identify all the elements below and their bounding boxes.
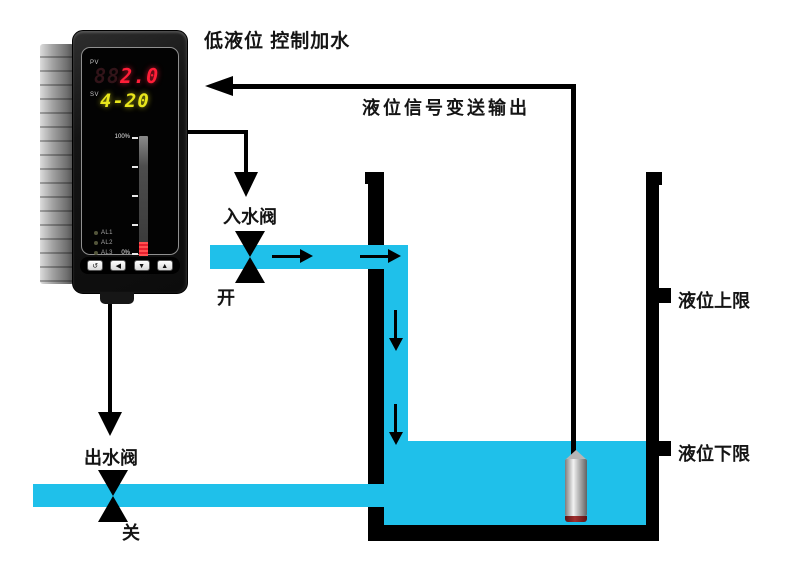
level-control-diagram: 低液位 控制加水 液位信号变送输出 入水阀 开 出水阀 关 液位上限 液位下限 …: [0, 0, 790, 566]
alarm-led-3: [94, 251, 98, 255]
flow-arrow-down-2-head: [389, 432, 403, 445]
signal-output-label: 液位信号变送输出: [362, 94, 530, 120]
inlet-control-line-vertical: [244, 130, 248, 172]
diagram-title: 低液位 控制加水: [204, 26, 350, 53]
inlet-valve-state: 开: [217, 284, 235, 310]
alarm-label-1: AL1: [101, 230, 113, 236]
bar-scale-max: 100%: [108, 134, 130, 140]
flow-arrow-down-2-shaft: [394, 404, 397, 432]
alarm-row-3: AL3: [94, 250, 113, 256]
outlet-control-line-vertical: [108, 300, 112, 412]
upper-limit-tick: [656, 288, 671, 303]
level-sensor-probe: [565, 459, 587, 516]
upper-limit-label: 液位上限: [678, 287, 750, 313]
flow-arrow-right-2-head: [388, 249, 401, 263]
alarm-label-3: AL3: [101, 250, 113, 256]
lower-limit-label: 液位下限: [678, 440, 750, 466]
inlet-valve-symbol-lower: [235, 257, 265, 283]
inlet-control-line-horizontal: [186, 130, 248, 134]
flow-arrow-right-1-shaft: [272, 255, 300, 258]
outlet-pipe-water: [33, 484, 384, 507]
flow-arrow-down-1-shaft: [394, 310, 397, 338]
alarm-led-2: [94, 241, 98, 245]
bar-tick-50: [132, 195, 138, 197]
inlet-control-arrow-head: [234, 172, 258, 197]
tank-left-wall-cap: [365, 172, 384, 184]
pv-readout: 88 2.0: [94, 64, 159, 88]
bar-fill: [139, 242, 148, 256]
alarm-row-2: AL2: [94, 240, 113, 246]
inlet-valve-label: 入水阀: [223, 203, 277, 229]
lower-limit-tick: [656, 441, 671, 456]
flow-arrow-right-1-head: [300, 249, 313, 263]
meter-front-panel: PV 88 2.0 SV 4-20 100% 0% AL1: [72, 30, 188, 294]
alarm-row-1: AL1: [94, 230, 113, 236]
tank-left-wall-middle: [368, 269, 384, 484]
meter-side-panel: [40, 44, 74, 284]
sensor-cable: [571, 84, 576, 456]
meter-keypad: ↺ ◀ ▼ ▲: [80, 257, 180, 274]
bar-tick-0: [132, 253, 138, 255]
tank-right-wall: [646, 172, 659, 527]
sv-label: SV: [90, 92, 99, 98]
flow-arrow-right-2-shaft: [360, 255, 388, 258]
tank-left-wall-lower: [368, 507, 384, 527]
bar-tick-75: [132, 166, 138, 168]
inlet-valve-symbol: [235, 231, 265, 257]
bargraph-track: [139, 136, 148, 256]
outlet-control-arrow-head: [98, 412, 122, 436]
sv-value: 4-20: [100, 90, 150, 112]
bar-tick-25: [132, 224, 138, 226]
tank-right-wall-cap: [646, 172, 662, 185]
up-key-button: ▲: [157, 260, 173, 271]
down-key-button: ▼: [134, 260, 150, 271]
flow-arrow-down-1-head: [389, 338, 403, 351]
bar-tick-100: [132, 137, 138, 139]
set-key-button: ↺: [87, 260, 103, 271]
signal-arrow-head: [205, 76, 233, 96]
sv-readout: 4-20: [100, 90, 150, 112]
alarm-led-1: [94, 231, 98, 235]
meter-display: PV 88 2.0 SV 4-20 100% 0% AL1: [81, 47, 179, 255]
pv-ghost-digits: 88: [94, 64, 120, 88]
meter-mount-tab: [100, 292, 134, 304]
level-sensor-tip: [565, 516, 587, 522]
outlet-valve-label: 出水阀: [84, 444, 138, 470]
alarm-label-2: AL2: [101, 240, 113, 246]
shift-key-button: ◀: [110, 260, 126, 271]
outlet-valve-symbol: [98, 470, 128, 496]
outlet-valve-state: 关: [122, 519, 140, 545]
signal-line-horizontal: [231, 84, 575, 89]
tank-water-pool: [384, 441, 646, 526]
pv-value: 2.0: [120, 64, 159, 88]
tank-bottom-wall: [368, 525, 659, 541]
